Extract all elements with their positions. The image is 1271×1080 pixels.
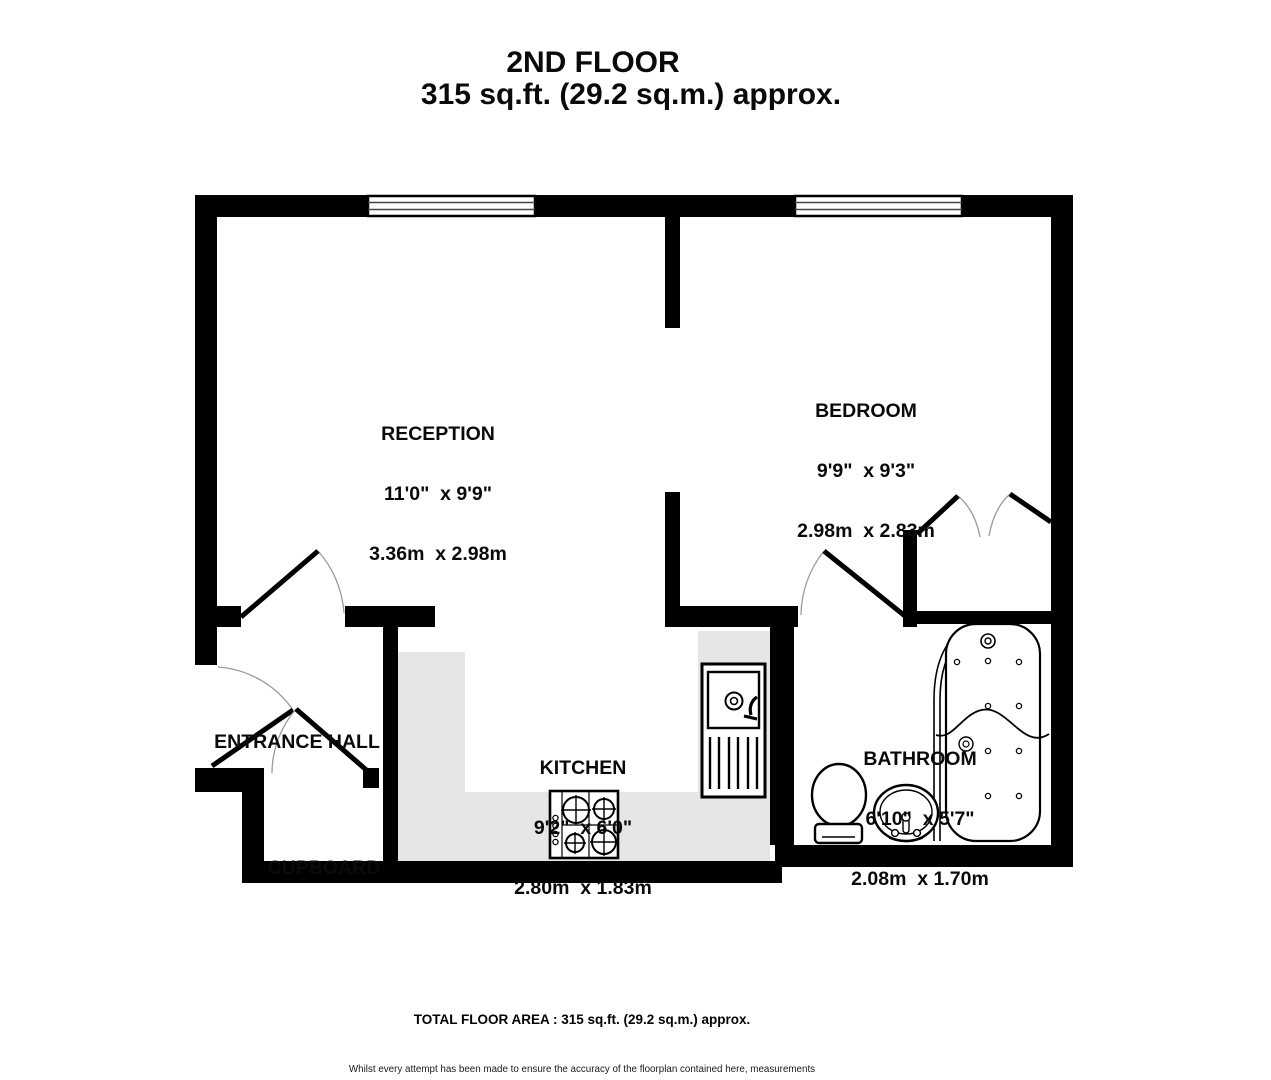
room-size-metric: 2.80m x 1.83m (514, 878, 652, 898)
room-size-imperial: 11'0" x 9'9" (369, 484, 507, 504)
total-floor-area: TOTAL FLOOR AREA : 315 sq.ft. (29.2 sq.m… (132, 1011, 1032, 1029)
window-reception-icon (368, 196, 535, 216)
wall-reception-door-stub (217, 606, 241, 627)
floorplan-page: 2ND FLOOR 315 sq.ft. (29.2 sq.m.) approx… (0, 0, 1271, 1080)
room-size-metric: 2.98m x 2.83m (797, 521, 935, 541)
room-name: KITCHEN (514, 758, 652, 778)
wall-divider-upper (665, 217, 680, 328)
wall-right (1051, 217, 1073, 845)
wall-hall-segment (345, 606, 435, 627)
room-size-imperial: 9'2" x 6'0" (514, 818, 652, 838)
room-label-entrance-hall: ENTRANCE HALL (214, 692, 380, 792)
room-name: RECEPTION (369, 424, 507, 444)
room-name: BEDROOM (797, 401, 935, 421)
footer: TOTAL FLOOR AREA : 315 sq.ft. (29.2 sq.m… (132, 975, 1032, 1080)
room-label-cupboard: CUPBOARD (268, 818, 381, 918)
room-name: BATHROOM (851, 749, 989, 769)
wall-divider-lower (665, 492, 680, 613)
room-label-kitchen: KITCHEN 9'2" x 6'0" 2.80m x 1.83m (514, 718, 652, 938)
disclaimer-line: Whilst every attempt has been made to en… (132, 1065, 1032, 1076)
room-label-bedroom: BEDROOM 9'9" x 9'3" 2.98m x 2.83m (797, 361, 935, 581)
room-name: CUPBOARD (268, 858, 381, 878)
room-label-reception: RECEPTION 11'0" x 9'9" 3.36m x 2.98m (369, 384, 507, 604)
reception-door-icon (241, 551, 344, 617)
room-size-metric: 2.08m x 1.70m (851, 869, 989, 889)
wardrobe-double-doors-icon (917, 494, 1051, 537)
room-size-imperial: 6'10" x 5'7" (851, 809, 989, 829)
room-size-metric: 3.36m x 2.98m (369, 544, 507, 564)
wall-left (195, 217, 217, 665)
room-name: ENTRANCE HALL (214, 732, 380, 752)
wall-kitchen-left (383, 627, 398, 863)
kitchen-sink-unit-icon (702, 664, 765, 797)
room-size-imperial: 9'9" x 9'3" (797, 461, 935, 481)
room-label-bathroom: BATHROOM 6'10" x 5'7" 2.08m x 1.70m (851, 709, 989, 929)
wall-kitchen-bathroom-divider (770, 606, 794, 845)
window-bedroom-icon (795, 196, 962, 216)
